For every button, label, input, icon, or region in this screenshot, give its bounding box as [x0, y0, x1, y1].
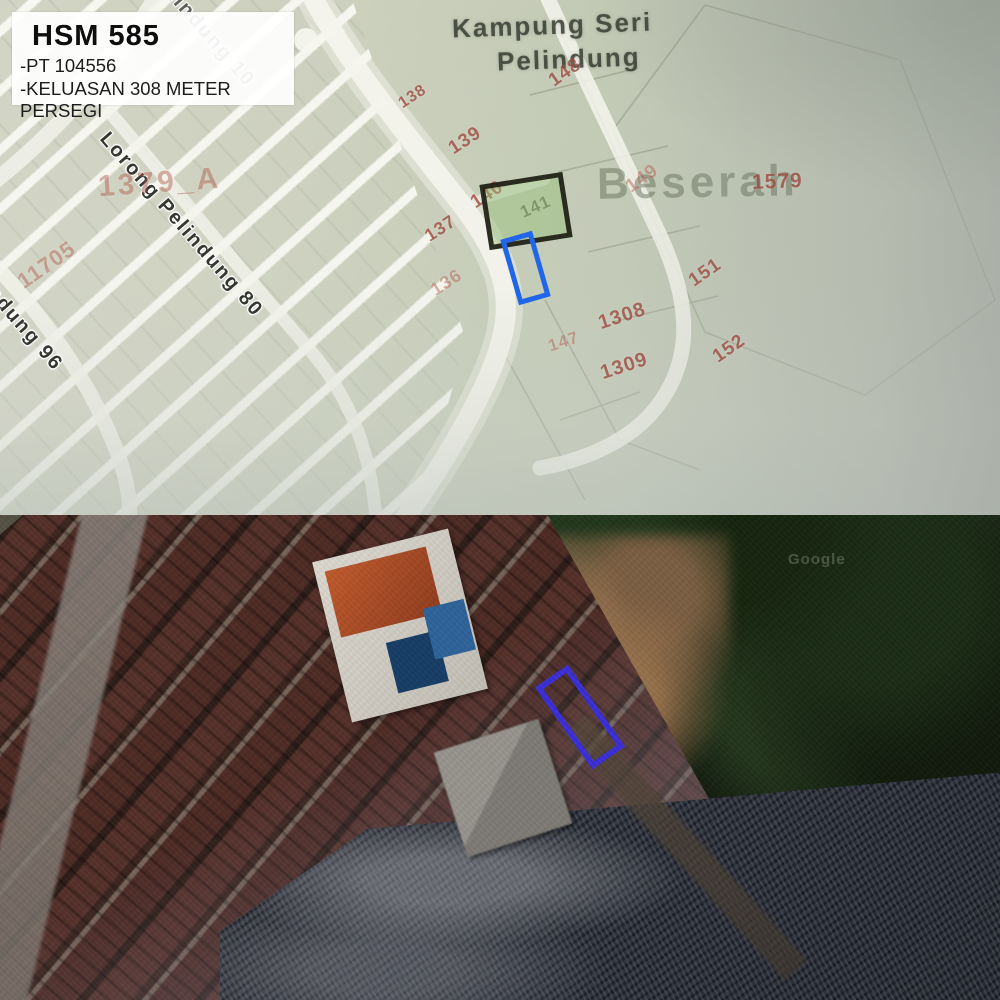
plot-area: -KELUASAN 308 METER PERSEGI [20, 78, 284, 122]
plot-info-card: HSM 585 -PT 104556 -KELUASAN 308 METER P… [12, 12, 294, 105]
orange-roof [325, 546, 442, 637]
lot-number-label: 1579 [752, 169, 804, 195]
aerial-photo-panel: Google [0, 515, 1000, 1000]
plot-title: HSM 585 [32, 20, 284, 53]
cadastral-map-panel: Kampung Seri Pelindung Beserah Lorong Pe… [0, 0, 1000, 515]
plot-pt-number: -PT 104556 [20, 55, 284, 77]
google-watermark: Google [788, 551, 846, 568]
land-plot-location-screenshot: Kampung Seri Pelindung Beserah Lorong Pe… [0, 0, 1000, 1000]
